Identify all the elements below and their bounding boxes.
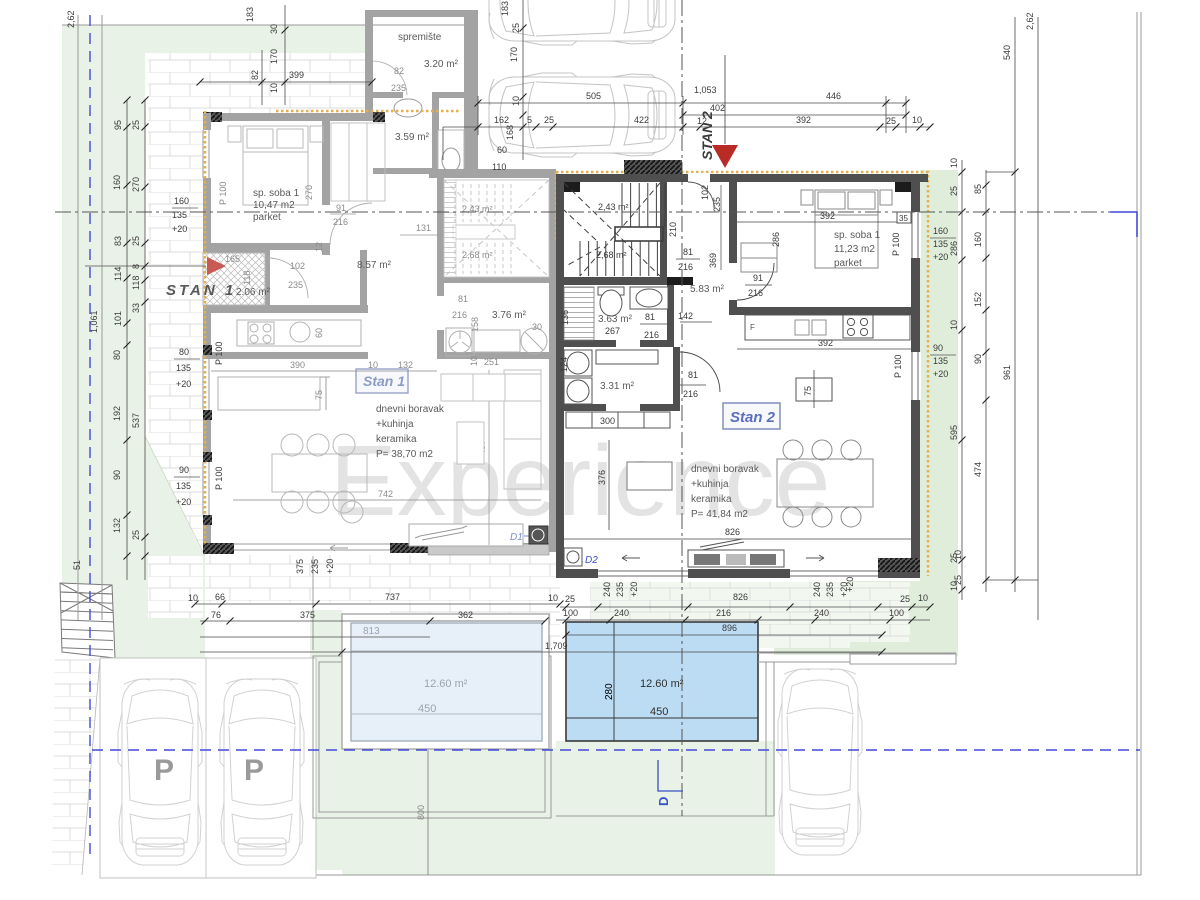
- svg-text:+20: +20: [933, 369, 948, 379]
- svg-text:183: 183: [500, 1, 510, 16]
- svg-text:11,23 m2: 11,23 m2: [834, 244, 875, 255]
- svg-text:+20: +20: [172, 224, 187, 234]
- svg-text:124: 124: [559, 357, 569, 372]
- svg-text:540: 540: [1002, 45, 1012, 60]
- svg-text:114: 114: [113, 267, 123, 281]
- svg-text:135: 135: [176, 363, 191, 373]
- svg-text:12: 12: [314, 242, 324, 252]
- svg-text:25: 25: [131, 120, 141, 130]
- svg-text:392: 392: [818, 338, 833, 348]
- svg-text:135: 135: [933, 239, 948, 249]
- svg-text:F: F: [750, 323, 755, 332]
- svg-text:270: 270: [131, 177, 141, 192]
- svg-text:216: 216: [716, 608, 731, 618]
- svg-text:P: P: [244, 754, 264, 787]
- svg-text:170: 170: [269, 49, 279, 64]
- svg-text:75: 75: [803, 386, 813, 396]
- svg-text:30: 30: [532, 322, 542, 332]
- svg-text:83: 83: [113, 236, 123, 246]
- svg-text:216: 216: [678, 262, 693, 272]
- svg-text:dnevni boravak: dnevni boravak: [376, 404, 445, 415]
- svg-text:+20: +20: [176, 379, 191, 389]
- svg-text:D1: D1: [510, 532, 523, 543]
- svg-text:12: 12: [697, 116, 707, 126]
- svg-text:3.59 m²: 3.59 m²: [395, 132, 430, 143]
- svg-text:25: 25: [900, 594, 910, 604]
- svg-text:251: 251: [484, 357, 499, 367]
- svg-text:446: 446: [826, 91, 841, 101]
- svg-text:10: 10: [912, 115, 922, 125]
- svg-text:118: 118: [242, 271, 252, 285]
- svg-text:376: 376: [597, 470, 607, 485]
- svg-text:5: 5: [527, 115, 532, 125]
- svg-text:10: 10: [368, 360, 378, 370]
- svg-text:8.57 m²: 8.57 m²: [357, 260, 392, 271]
- svg-text:parket: parket: [834, 258, 862, 269]
- svg-text:81: 81: [458, 294, 468, 304]
- svg-text:2,43 m²: 2,43 m²: [598, 202, 629, 212]
- svg-text:3.20 m²: 3.20 m²: [424, 59, 459, 70]
- svg-text:101: 101: [113, 311, 123, 326]
- svg-text:102: 102: [700, 185, 710, 200]
- svg-text:240: 240: [814, 608, 829, 618]
- svg-text:813: 813: [363, 626, 380, 637]
- svg-text:60: 60: [314, 328, 324, 338]
- svg-text:spremište: spremište: [398, 32, 442, 43]
- svg-text:474: 474: [973, 462, 983, 477]
- svg-text:25: 25: [565, 594, 575, 604]
- svg-text:737: 737: [385, 592, 400, 602]
- svg-text:51: 51: [72, 560, 82, 570]
- svg-text:81: 81: [645, 312, 655, 322]
- svg-text:keramika: keramika: [376, 434, 417, 445]
- svg-text:216: 216: [333, 217, 348, 227]
- svg-text:80: 80: [179, 347, 189, 357]
- svg-text:3.63 m²: 3.63 m²: [598, 314, 633, 325]
- svg-text:30: 30: [269, 24, 279, 34]
- svg-text:10: 10: [918, 593, 928, 603]
- svg-text:826: 826: [725, 527, 740, 537]
- svg-text:422: 422: [634, 115, 649, 125]
- svg-text:10: 10: [953, 550, 963, 560]
- svg-text:162: 162: [494, 115, 509, 125]
- svg-text:sp. soba 1: sp. soba 1: [834, 230, 881, 241]
- svg-text:P= 41,84 m2: P= 41,84 m2: [691, 509, 748, 520]
- svg-text:10: 10: [949, 158, 959, 168]
- svg-text:2,62: 2,62: [66, 10, 76, 28]
- svg-text:375: 375: [295, 559, 305, 574]
- svg-text:60: 60: [497, 145, 507, 155]
- svg-text:+20: +20: [845, 577, 855, 592]
- svg-text:91: 91: [753, 273, 763, 283]
- svg-text:369: 369: [708, 253, 718, 268]
- svg-text:961: 961: [1002, 365, 1012, 380]
- svg-text:267: 267: [605, 326, 620, 336]
- svg-text:D: D: [656, 797, 671, 806]
- svg-text:8: 8: [131, 264, 141, 269]
- svg-text:90: 90: [112, 470, 122, 480]
- svg-text:+20: +20: [176, 497, 191, 507]
- svg-text:10: 10: [188, 593, 198, 603]
- svg-text:25: 25: [131, 236, 141, 246]
- svg-text:parket: parket: [253, 212, 281, 223]
- svg-text:Stan 1: Stan 1: [363, 373, 405, 389]
- svg-text:10: 10: [469, 356, 479, 366]
- svg-text:595: 595: [949, 425, 959, 440]
- svg-text:160: 160: [973, 232, 983, 247]
- svg-text:135: 135: [176, 481, 191, 491]
- svg-text:81: 81: [688, 370, 698, 380]
- svg-text:136: 136: [560, 310, 570, 325]
- svg-text:+20: +20: [933, 252, 948, 262]
- svg-text:132: 132: [112, 518, 122, 533]
- svg-text:216: 216: [644, 330, 659, 340]
- svg-text:75: 75: [314, 390, 324, 400]
- svg-text:240: 240: [614, 608, 629, 618]
- svg-text:10: 10: [548, 593, 558, 603]
- svg-text:235: 235: [391, 83, 406, 93]
- svg-text:P 100: P 100: [214, 342, 224, 365]
- svg-text:450: 450: [418, 703, 436, 715]
- svg-text:110: 110: [492, 162, 506, 172]
- svg-text:2,68 m²: 2,68 m²: [462, 250, 493, 260]
- svg-text:896: 896: [722, 623, 737, 633]
- svg-text:82: 82: [394, 66, 404, 76]
- svg-text:192: 192: [112, 406, 122, 421]
- svg-text:286: 286: [771, 232, 781, 247]
- svg-text:82: 82: [250, 70, 260, 80]
- svg-text:80: 80: [112, 350, 122, 360]
- svg-text:10: 10: [269, 83, 279, 93]
- svg-text:+20: +20: [325, 559, 335, 574]
- svg-text:160: 160: [174, 196, 189, 206]
- svg-text:P 100: P 100: [893, 355, 903, 378]
- svg-text:keramika: keramika: [691, 494, 732, 505]
- svg-text:362: 362: [458, 610, 473, 620]
- svg-text:25: 25: [131, 530, 141, 540]
- svg-text:P 100: P 100: [891, 233, 901, 256]
- svg-text:25: 25: [544, 115, 554, 125]
- svg-text:81: 81: [683, 247, 693, 257]
- svg-text:165: 165: [225, 254, 240, 264]
- svg-text:216: 216: [683, 389, 698, 399]
- svg-text:33: 33: [131, 303, 141, 313]
- svg-text:235: 235: [825, 582, 835, 597]
- svg-text:100: 100: [889, 608, 904, 618]
- svg-text:90: 90: [933, 343, 943, 353]
- svg-text:132: 132: [398, 360, 413, 370]
- svg-text:235: 235: [615, 582, 625, 597]
- svg-text:280: 280: [604, 683, 615, 700]
- svg-text:240: 240: [812, 582, 822, 597]
- svg-text:5.83 m²: 5.83 m²: [690, 284, 725, 295]
- svg-text:Stan 2: Stan 2: [730, 409, 776, 426]
- svg-text:+kuhinja: +kuhinja: [376, 419, 414, 430]
- svg-text:135: 135: [933, 356, 948, 366]
- svg-text:160: 160: [933, 226, 948, 236]
- svg-text:sp. soba 1: sp. soba 1: [253, 188, 300, 199]
- svg-text:286: 286: [949, 241, 959, 256]
- svg-text:235: 235: [712, 197, 722, 212]
- svg-text:131: 131: [416, 223, 431, 233]
- svg-text:392: 392: [796, 115, 811, 125]
- svg-text:90: 90: [973, 354, 983, 364]
- svg-text:216: 216: [452, 310, 467, 320]
- svg-text:505: 505: [586, 91, 601, 101]
- svg-text:240: 240: [602, 582, 612, 597]
- svg-text:3.31 m²: 3.31 m²: [600, 381, 635, 392]
- svg-text:537: 537: [131, 413, 141, 428]
- svg-text:399: 399: [289, 70, 304, 80]
- svg-text:2,68 m²: 2,68 m²: [596, 250, 627, 260]
- svg-text:25: 25: [511, 23, 521, 33]
- svg-text:25: 25: [953, 575, 963, 585]
- svg-text:235: 235: [288, 280, 303, 290]
- svg-text:402: 402: [710, 103, 725, 113]
- svg-text:+kuhinja: +kuhinja: [691, 479, 729, 490]
- svg-text:66: 66: [215, 592, 225, 602]
- svg-text:10: 10: [511, 96, 521, 106]
- svg-text:300: 300: [600, 416, 615, 426]
- svg-text:390: 390: [290, 360, 305, 370]
- svg-text:800: 800: [416, 805, 426, 820]
- svg-text:142: 142: [678, 311, 693, 321]
- svg-text:10: 10: [949, 320, 959, 330]
- svg-text:35: 35: [899, 214, 908, 223]
- svg-text:P 100: P 100: [214, 467, 224, 490]
- svg-text:152: 152: [973, 292, 983, 307]
- svg-text:2,62: 2,62: [1025, 12, 1035, 30]
- svg-text:12.60 m²: 12.60 m²: [424, 678, 468, 690]
- svg-text:85: 85: [973, 184, 983, 194]
- svg-text:1,053: 1,053: [694, 85, 717, 95]
- svg-text:2.06 m²: 2.06 m²: [236, 287, 271, 298]
- svg-text:118: 118: [131, 276, 141, 290]
- svg-text:25: 25: [886, 116, 896, 126]
- svg-text:P: P: [154, 754, 174, 787]
- svg-text:12.60 m²: 12.60 m²: [640, 678, 684, 690]
- svg-text:STAN 1: STAN 1: [166, 282, 236, 299]
- svg-text:100: 100: [563, 608, 578, 618]
- svg-text:235: 235: [310, 559, 320, 574]
- svg-text:P= 38,70 m2: P= 38,70 m2: [376, 449, 433, 460]
- svg-text:168: 168: [505, 125, 515, 140]
- svg-text:95: 95: [113, 120, 123, 130]
- svg-text:170: 170: [509, 47, 519, 62]
- svg-text:160: 160: [112, 175, 122, 190]
- svg-text:210: 210: [668, 222, 678, 237]
- svg-text:P 100: P 100: [218, 182, 228, 205]
- svg-text:270: 270: [304, 185, 314, 200]
- svg-text:742: 742: [378, 489, 393, 499]
- svg-text:183: 183: [245, 7, 255, 22]
- svg-text:3.76 m²: 3.76 m²: [492, 310, 527, 321]
- svg-text:+20: +20: [629, 582, 639, 597]
- svg-text:76: 76: [211, 610, 221, 620]
- svg-text:450: 450: [650, 706, 668, 718]
- svg-text:dnevni boravak: dnevni boravak: [691, 464, 760, 475]
- svg-text:25: 25: [949, 186, 959, 196]
- svg-text:10,47 m2: 10,47 m2: [253, 200, 295, 211]
- svg-text:375: 375: [300, 610, 315, 620]
- svg-text:1,709: 1,709: [545, 641, 568, 651]
- svg-text:826: 826: [733, 592, 748, 602]
- svg-text:90: 90: [179, 465, 189, 475]
- svg-text:216: 216: [748, 288, 763, 298]
